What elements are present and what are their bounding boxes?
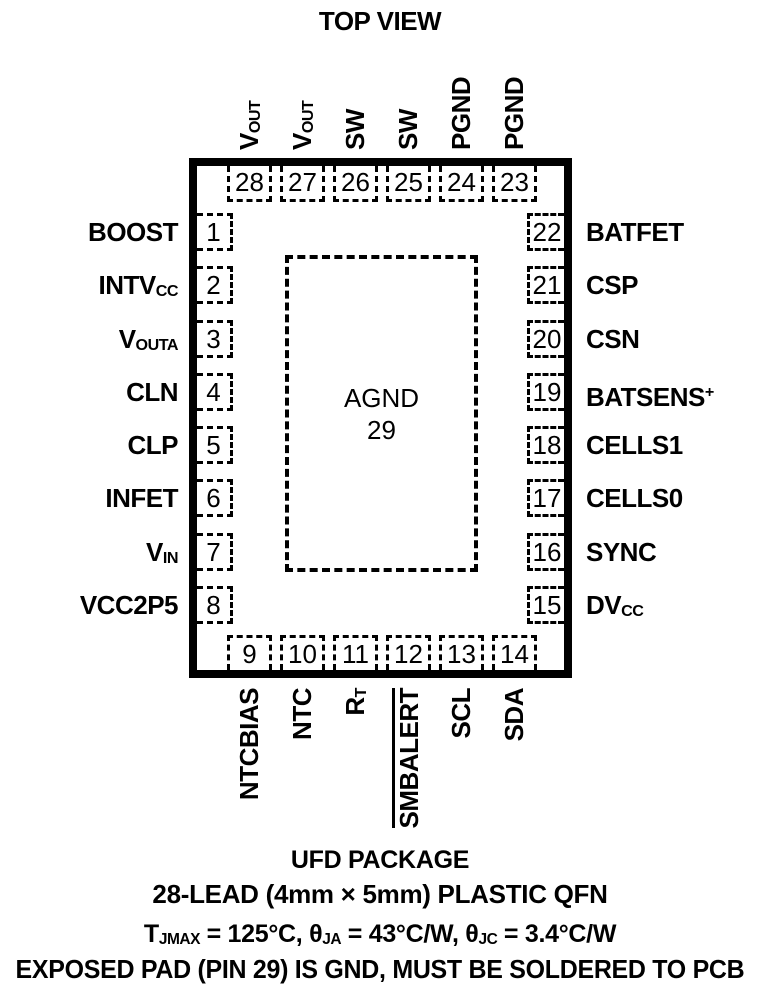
pin-5-box: 5 (197, 426, 233, 464)
pin-18-box: 18 (527, 426, 564, 464)
pin-7-box: 7 (197, 533, 233, 571)
pin-21-number: 21 (533, 270, 562, 301)
package-name: UFD PACKAGE (0, 846, 760, 875)
pin-26-number: 26 (341, 167, 370, 198)
pin-5-number: 5 (206, 430, 220, 461)
pin-10-number: 10 (288, 639, 317, 670)
pin-25-number: 25 (394, 167, 423, 198)
pin-2-label: INTVCC (0, 269, 178, 301)
pin-2-number: 2 (206, 270, 220, 301)
pin-18-label: CELLS1 (586, 429, 760, 461)
pin-20-number: 20 (533, 324, 562, 355)
pin-3-number: 3 (206, 324, 220, 355)
pin-28-number: 28 (235, 167, 264, 198)
pin-6-label: INFET (0, 482, 178, 514)
pin-17-number: 17 (533, 483, 562, 514)
pin-26-label: SW (339, 20, 371, 150)
pin-26-box: 26 (333, 166, 378, 202)
top-view-title: TOP VIEW (0, 6, 760, 37)
pin-21-box: 21 (527, 266, 564, 304)
pin-24-number: 24 (447, 167, 476, 198)
exposed-pad-label: AGND (344, 382, 419, 414)
pin-24-box: 24 (439, 166, 484, 202)
exposed-pad-note: EXPOSED PAD (PIN 29) IS GND, MUST BE SOL… (15, 954, 745, 985)
package-description: 28-LEAD (4mm × 5mm) PLASTIC QFN (0, 879, 760, 910)
pinout-diagram: TOP VIEW AGND 29 28 27 26 25 24 23 VOUT … (0, 0, 760, 992)
pin-28-label: VOUT (233, 20, 265, 150)
pin-5-label: CLP (0, 429, 178, 461)
pin-9-number: 9 (242, 639, 256, 670)
pin-15-box: 15 (527, 586, 564, 624)
pin-23-number: 23 (500, 167, 529, 198)
pin-16-number: 16 (533, 537, 562, 568)
pin-7-label: VIN (0, 536, 178, 568)
pin-7-number: 7 (206, 537, 220, 568)
pin-22-number: 22 (533, 217, 562, 248)
pin-23-box: 23 (492, 166, 537, 202)
pin-25-label: SW (392, 20, 424, 150)
pin-8-label: VCC2P5 (0, 589, 178, 621)
exposed-pad: AGND 29 (285, 255, 478, 572)
pin-8-box: 8 (197, 586, 233, 624)
pin-13-box: 13 (439, 635, 484, 670)
pin-4-label: CLN (0, 376, 178, 408)
pin-19-number: 19 (533, 377, 562, 408)
pin-15-label: DVCC (586, 589, 760, 621)
pin-11-number: 11 (342, 639, 369, 670)
pin-11-box: 11 (333, 635, 378, 670)
pin-14-label: SDA (498, 688, 530, 838)
pin-12-number: 12 (394, 639, 423, 670)
pin-13-label: SCL (445, 688, 477, 838)
pin-14-number: 14 (500, 639, 529, 670)
pin-10-box: 10 (280, 635, 325, 670)
pin-3-box: 3 (197, 320, 233, 358)
pin-27-number: 27 (288, 167, 317, 198)
pin-14-box: 14 (492, 635, 537, 670)
pin-22-box: 22 (527, 213, 564, 251)
pin-17-box: 17 (527, 479, 564, 517)
pin-28-box: 28 (227, 166, 272, 202)
pin-1-number: 1 (206, 217, 220, 248)
pin-18-number: 18 (533, 430, 562, 461)
pin-23-label: PGND (498, 20, 530, 150)
pin-16-label: SYNC (586, 536, 760, 568)
pin-4-number: 4 (206, 377, 220, 408)
pin-12-label: SMBALERT (392, 688, 424, 838)
exposed-pad-number: 29 (367, 414, 396, 446)
pin-9-box: 9 (227, 635, 272, 670)
pin-2-box: 2 (197, 266, 233, 304)
pin-27-box: 27 (280, 166, 325, 202)
pin-4-box: 4 (197, 373, 233, 411)
pin-13-number: 13 (447, 639, 476, 670)
pin-27-label: VOUT (286, 20, 318, 150)
pin-16-box: 16 (527, 533, 564, 571)
pin-15-number: 15 (533, 590, 562, 621)
pin-19-label: BATSENS+ (586, 376, 760, 408)
pin-17-label: CELLS0 (586, 482, 760, 514)
pin-19-box: 19 (527, 373, 564, 411)
pin-8-number: 8 (206, 590, 220, 621)
pin-1-box: 1 (197, 213, 233, 251)
pin-6-box: 6 (197, 479, 233, 517)
pin-12-box: 12 (386, 635, 431, 670)
pin-1-label: BOOST (0, 216, 178, 248)
thermal-specs: TJMAX = 125°C, θJA = 43°C/W, θJC = 3.4°C… (0, 920, 760, 949)
pin-25-box: 25 (386, 166, 431, 202)
pin-20-label: CSN (586, 323, 760, 355)
pin-24-label: PGND (445, 20, 477, 150)
pin-20-box: 20 (527, 320, 564, 358)
pin-6-number: 6 (206, 483, 220, 514)
pin-21-label: CSP (586, 269, 760, 301)
pin-22-label: BATFET (586, 216, 760, 248)
pin-11-label: RT (339, 688, 371, 838)
pin-10-label: NTC (286, 688, 318, 838)
pin-3-label: VOUTA (0, 323, 178, 355)
pin-9-label: NTCBIAS (233, 688, 265, 838)
